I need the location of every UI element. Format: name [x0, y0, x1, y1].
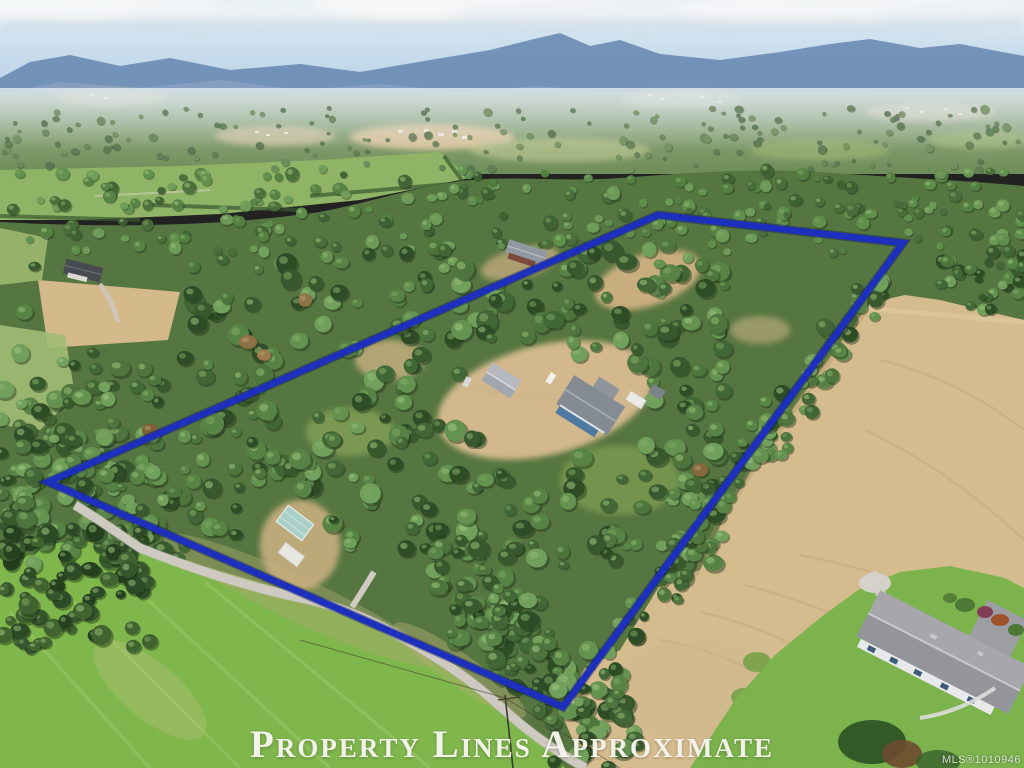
aerial-photo: Property Lines Approximate MLS®1010946	[0, 0, 1024, 768]
neighbor-parking	[859, 573, 891, 593]
clouds	[0, 0, 1024, 31]
left-green-field-a	[0, 228, 48, 285]
aerial-photo-scene	[0, 0, 1024, 768]
